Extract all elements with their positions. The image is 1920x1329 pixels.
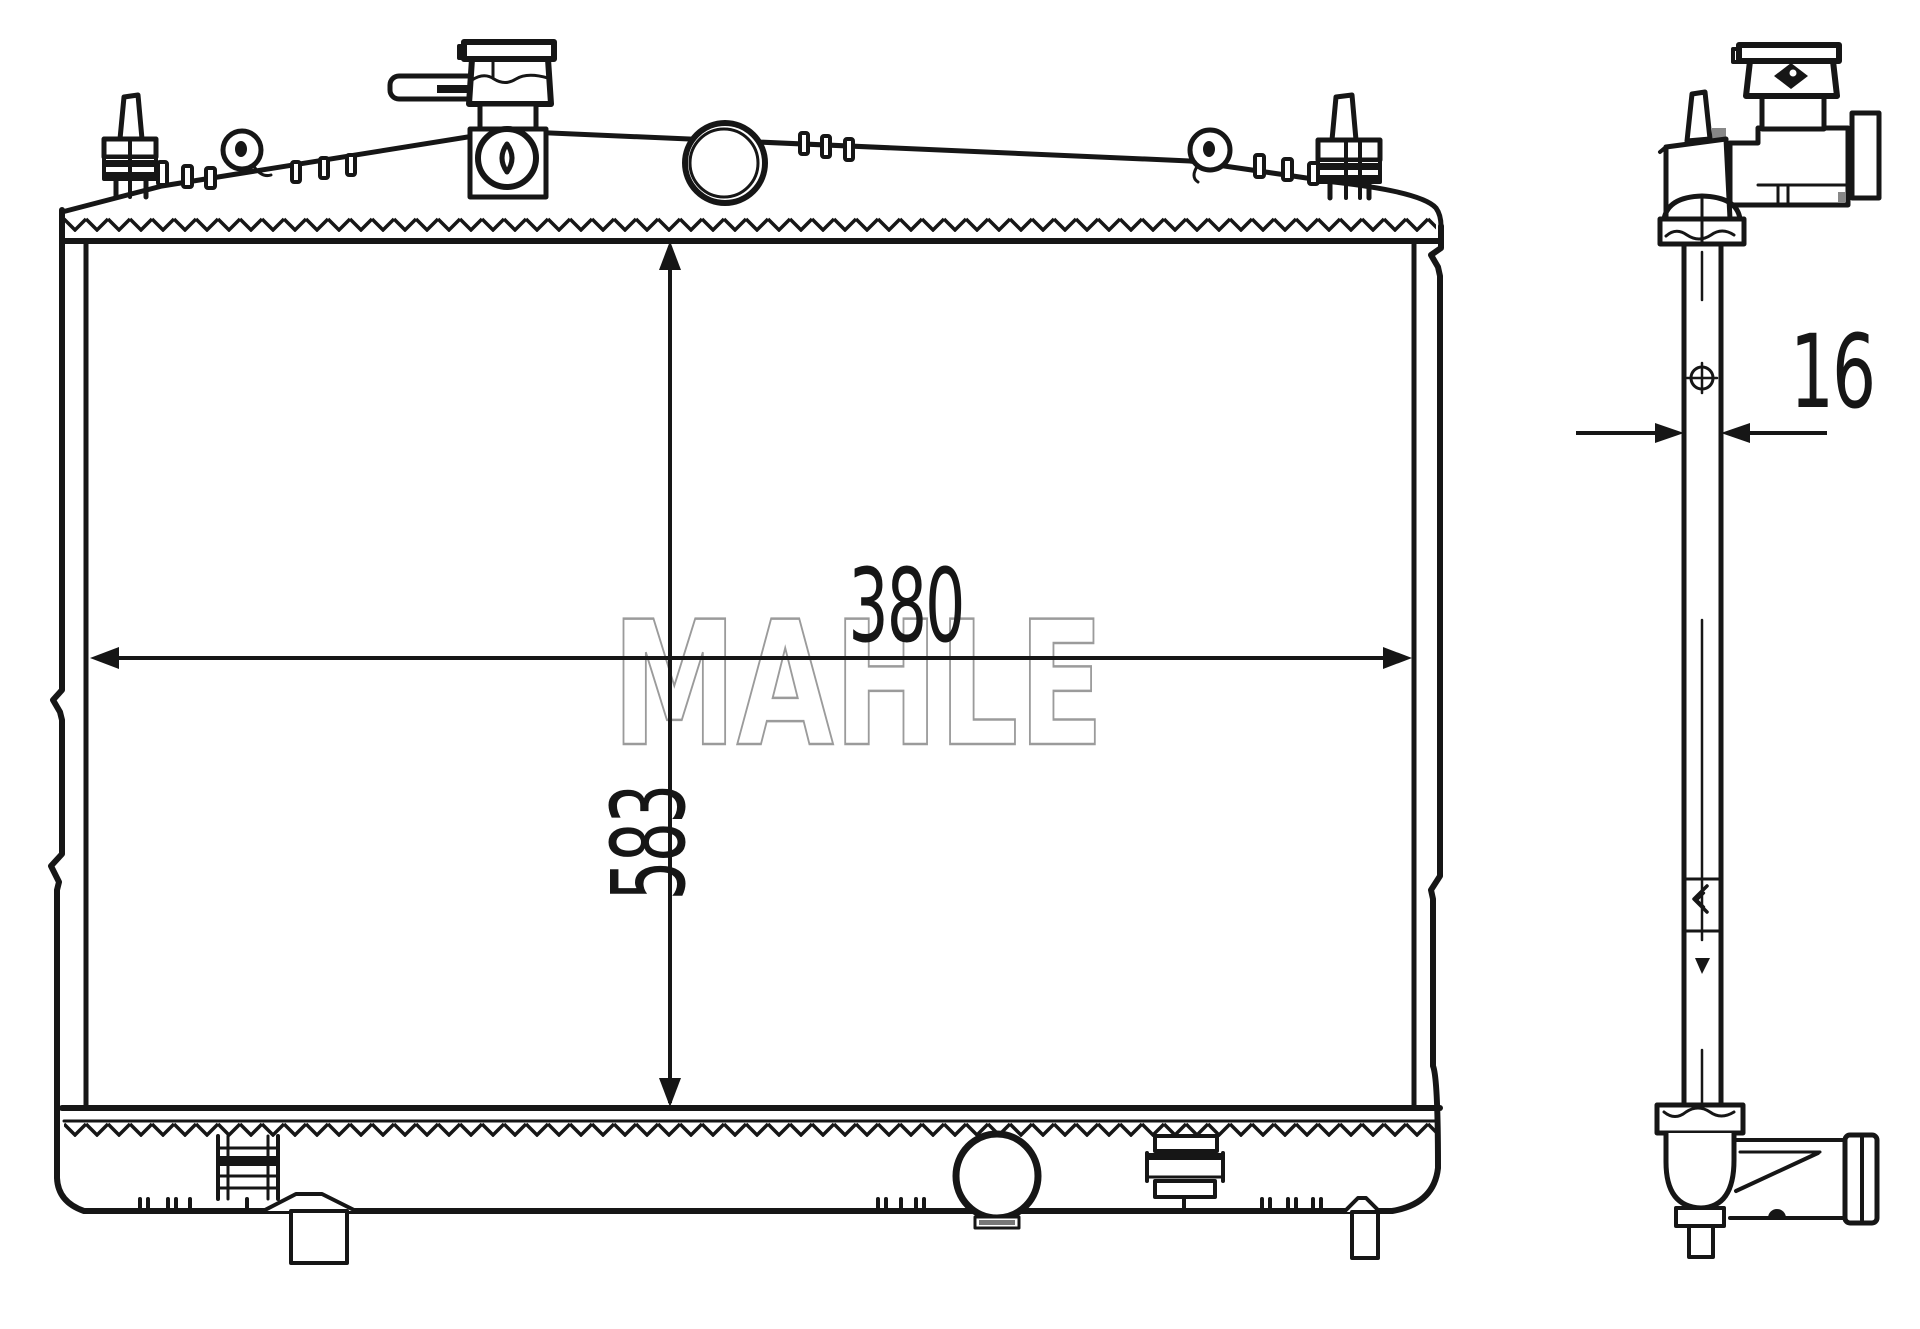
core-bottom-serration bbox=[64, 1122, 1436, 1137]
reservoir-port bbox=[685, 123, 765, 203]
right-grommet bbox=[1190, 130, 1230, 182]
side-bottom-tank bbox=[1657, 1105, 1743, 1208]
foot-peg-left bbox=[263, 1194, 356, 1263]
width-dimension-label: 380 bbox=[848, 556, 947, 658]
harness-clips-right bbox=[800, 133, 1318, 184]
side-filler-cap bbox=[1712, 45, 1879, 205]
radiator-side-view bbox=[1657, 45, 1879, 1257]
technical-drawing-canvas: MAHLE bbox=[0, 0, 1920, 1329]
outlet-pipe bbox=[1730, 1135, 1877, 1223]
height-dimension-label: 583 bbox=[599, 801, 705, 900]
foot-peg-right bbox=[1344, 1198, 1380, 1258]
side-core bbox=[1684, 244, 1721, 1163]
bottom-bracket-left bbox=[218, 1136, 278, 1211]
right-mount-bracket bbox=[1318, 95, 1380, 198]
bottom-bracket-right bbox=[1147, 1136, 1223, 1211]
side-foot-peg bbox=[1676, 1208, 1724, 1257]
filler-cap bbox=[390, 42, 554, 197]
depth-dimension-label: 16 bbox=[1781, 322, 1883, 424]
core-top-serration bbox=[64, 217, 1436, 232]
left-mount-bracket bbox=[104, 95, 156, 197]
